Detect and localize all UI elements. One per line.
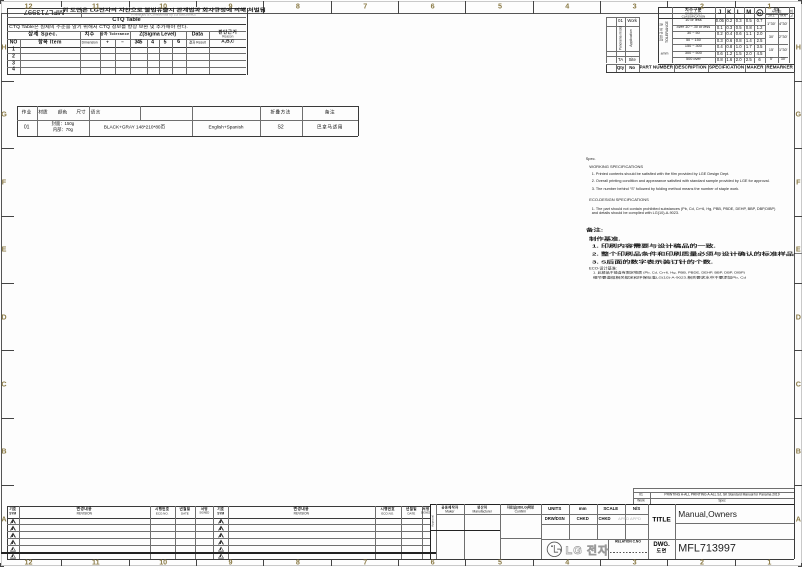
svg-text:LG 전자: LG 전자 bbox=[566, 543, 610, 557]
